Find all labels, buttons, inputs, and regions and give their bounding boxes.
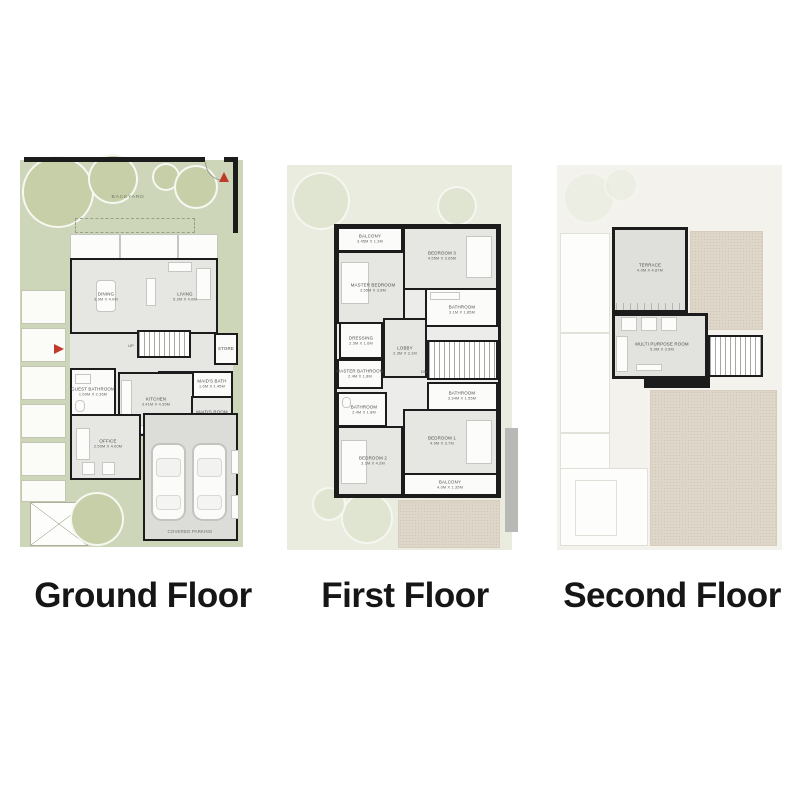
toilet [75, 400, 85, 412]
terrace-railing [616, 303, 684, 310]
table [636, 364, 662, 371]
tree-icon [437, 186, 477, 226]
room-label-bedroom-1: BEDROOM 1 4.0M X 3.7M [428, 436, 456, 447]
gate-notch [231, 495, 239, 519]
staircase [427, 340, 498, 380]
cabinet [621, 317, 637, 331]
pergola-outline [75, 218, 195, 233]
parapet-wall [644, 377, 710, 388]
caption-first-floor: First Floor [321, 576, 489, 616]
sofa [168, 262, 192, 272]
staircase [137, 330, 191, 358]
stairs-dn-label: DN [421, 369, 427, 374]
car-icon [192, 443, 227, 521]
sofa [196, 268, 211, 300]
room-label-kitchen: KITCHEN 3.41M X 4.35M [142, 397, 170, 408]
room-label-bedroom-3: BEDROOM 3 4.55M X 3.65M [428, 251, 456, 262]
bed [466, 420, 492, 464]
terrace-deck [70, 234, 120, 259]
floorplan-sheet: BACKYARD SIDEYARD DINING 3.0M X 4.0M L [0, 0, 800, 800]
tree-icon [341, 492, 393, 544]
room-label-office: OFFICE 2.50M X 4.00M [94, 439, 122, 450]
staircase [708, 335, 763, 377]
terrace-deck [120, 234, 178, 259]
room-label-maids-bath: MAID'S BATH 1.6M X 1.45M [197, 379, 226, 390]
sink [75, 374, 91, 384]
caption-second-floor: Second Floor [563, 576, 781, 616]
room-label-dressing: DRESSING 2.3M X 1.6M [349, 336, 373, 347]
gate-notch [231, 450, 239, 474]
boundary-wall-right [233, 157, 238, 233]
room-label-bathroom-top: BATHROOM 3.1M X 1.85M [449, 305, 475, 316]
parking-label: COVERED PARKING [168, 529, 213, 535]
car-icon [151, 443, 186, 521]
entry-arrow-icon [54, 344, 64, 354]
backyard-label: BACKYARD [112, 194, 145, 200]
planter [21, 366, 66, 400]
planter [21, 404, 66, 438]
room-label-dining: DINING 3.0M X 4.0M [94, 292, 118, 303]
boundary-wall-top [24, 157, 205, 162]
room-label-lobby: LOBBY 2.3M X 3.1M [393, 346, 417, 357]
stairs-up-label: UP [128, 343, 134, 348]
room-label-guest-bathroom: GUEST BATHROOM 1.60M X 2.35M [71, 387, 115, 398]
entry-arrow-icon [219, 172, 229, 182]
tree-icon [292, 172, 350, 230]
tree-icon [604, 168, 638, 202]
chair [102, 462, 115, 475]
chair [82, 462, 95, 475]
roof-texture [650, 390, 777, 546]
terrace-deck [178, 234, 218, 259]
planter [560, 333, 610, 433]
sofa [616, 336, 628, 372]
planter [560, 233, 610, 333]
cabinet [641, 317, 657, 331]
roof-terrace-texture [398, 500, 500, 548]
room-label-store: STORE [218, 346, 234, 352]
planter [21, 480, 66, 502]
cabinet [661, 317, 677, 331]
room-label-master-bedroom: MASTER BEDROOM 3.55M X 3.8M [351, 283, 396, 294]
tree-icon [70, 492, 124, 546]
desk [76, 428, 90, 460]
room-label-multi-purpose: MULTI PURPOSE ROOM 5.0M X 3.5M [635, 342, 688, 353]
room-label-balcony-top: BALCONY 3.45M X 1.3M [357, 234, 383, 245]
planter [21, 442, 66, 476]
room-label-balcony-bottom: BALCONY 4.0M X 1.35M [437, 480, 463, 491]
bed [466, 236, 492, 278]
vanity [430, 292, 460, 300]
room-label-bathroom-right: BATHROOM 3.34M X 1.55M [448, 391, 476, 402]
planter [21, 290, 66, 324]
room-label-bedroom-2: BEDROOM 2 3.1M X 4.2M [359, 456, 387, 467]
caption-ground-floor: Ground Floor [34, 576, 252, 616]
side-wall-strip [505, 428, 518, 532]
lower-roof-outline [575, 480, 617, 536]
room-label-bathroom-left: BATHROOM 2.4M X 1.8M [351, 405, 377, 416]
room-label-master-bathroom: MASTER BATHROOM 2.4M X 1.8M [336, 369, 383, 380]
room-label-living: LIVING 5.2M X 4.0M [173, 292, 197, 303]
room-label-terrace: TERRACE 4.0M X 4.87M [637, 263, 663, 274]
toilet [342, 397, 351, 408]
tv-unit [146, 278, 156, 306]
